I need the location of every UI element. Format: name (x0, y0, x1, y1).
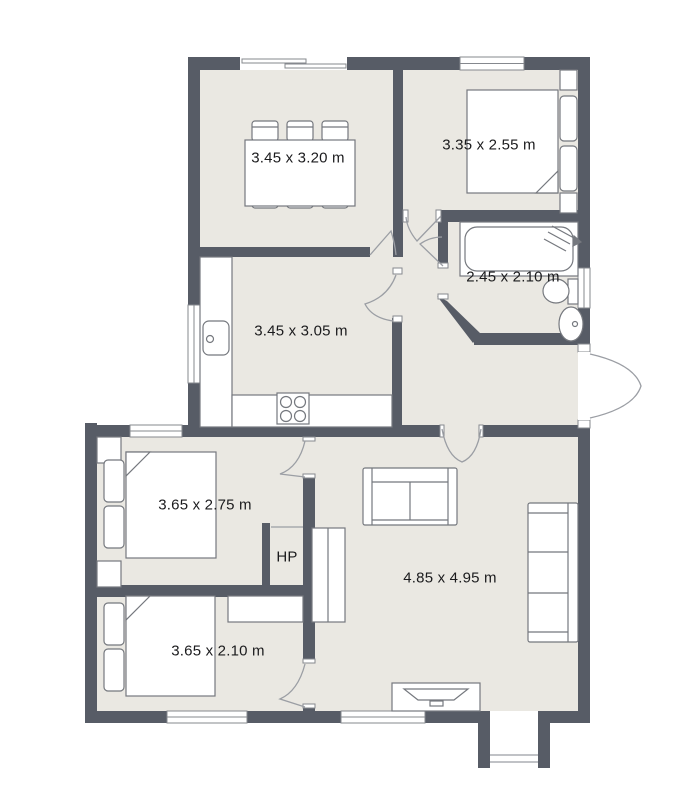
nightstand (560, 193, 577, 213)
pillow (560, 146, 577, 191)
sofa-three-seat (528, 503, 578, 642)
wall-porch-right (538, 711, 550, 768)
mattress (126, 452, 216, 558)
window-bedroom-bottom (167, 711, 247, 723)
wall-hp-left (262, 523, 270, 585)
toilet-bowl (543, 279, 569, 303)
wardrobe-bedroom-bottom (228, 596, 303, 622)
burner (281, 397, 292, 408)
burner (281, 411, 292, 422)
pillow (104, 460, 124, 502)
nightstand (560, 70, 577, 90)
window-kitchen (188, 305, 200, 383)
floor-plan: 3.45 x 3.20 m 3.35 x 2.55 m 2.45 x 2.10 … (0, 0, 685, 800)
nightstand (97, 561, 121, 587)
mattress (126, 596, 215, 696)
wall-lower-top-right (483, 425, 578, 437)
sink-tap (573, 322, 578, 327)
burner (295, 411, 306, 422)
mattress (467, 90, 558, 193)
sink-basin (559, 307, 583, 341)
dining-table (245, 140, 355, 206)
kitchen-sink-drain (207, 336, 214, 343)
pillow (104, 506, 124, 548)
wall-porch-left (478, 711, 490, 768)
wardrobe-living (312, 528, 345, 622)
floor-plan-drawing (0, 0, 685, 800)
wall-kitchen-right (392, 318, 402, 425)
sofa-two-seat (363, 468, 457, 525)
tv-unit (392, 683, 480, 711)
porch-opening (490, 711, 538, 723)
pillow (104, 649, 124, 691)
pillow (104, 603, 124, 645)
burner (295, 397, 306, 408)
wall-left-lower (85, 423, 97, 723)
window-living (341, 711, 425, 723)
bathtub-inner (465, 227, 573, 271)
front-door-jambs (578, 344, 590, 428)
wall-dining-bedroom-divider (393, 57, 403, 257)
door-front (590, 354, 641, 418)
dining-set (245, 121, 355, 208)
pillow (560, 96, 577, 141)
kitchen-counter-bottom (232, 395, 392, 427)
wall-bathroom-top (442, 210, 578, 222)
window-dining (240, 57, 347, 70)
window-bedroom-mid (130, 425, 182, 437)
window-bathroom (578, 268, 590, 308)
window-bedroom-top (460, 57, 524, 70)
nightstand (97, 437, 121, 463)
wall-dining-bottom (188, 247, 370, 257)
